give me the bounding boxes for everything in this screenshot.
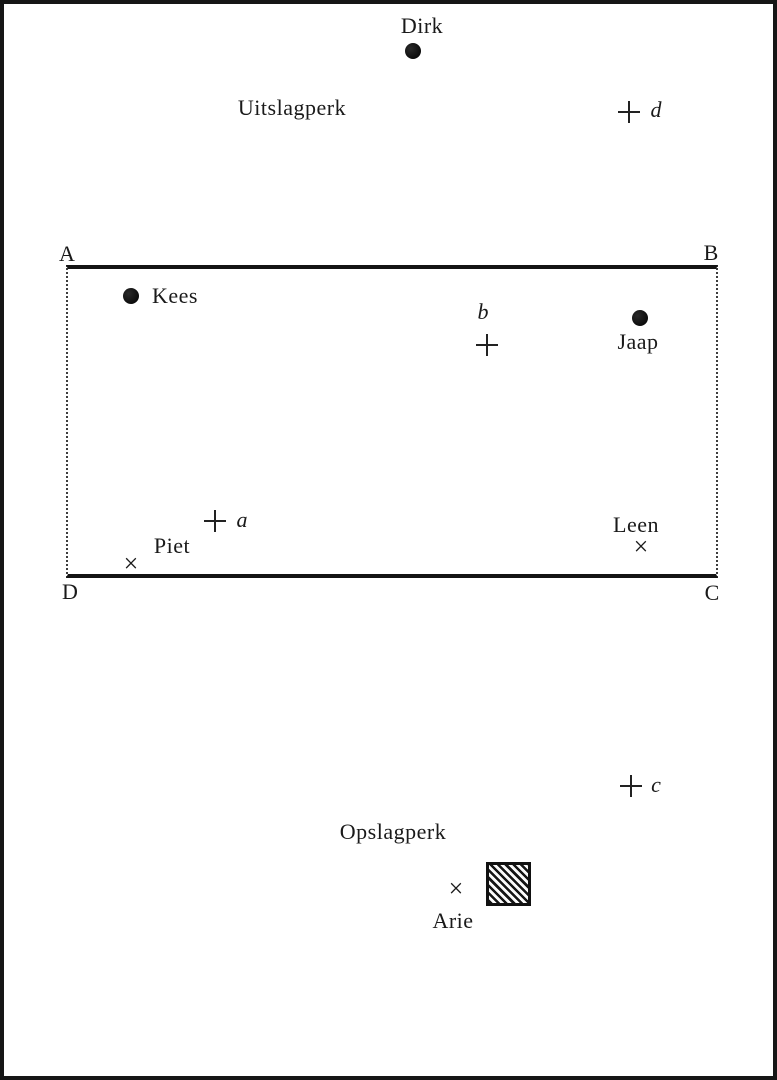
diagram-page: Dirk Uitslagperk d A B C D Kees b Jaap a… [0,0,777,1080]
corner-label-d: D [62,581,78,603]
player-label-kees: Kees [152,285,198,307]
point-label-a: a [237,509,248,531]
piet-cross-marker-icon: × [124,551,139,577]
hatched-square-icon [486,862,531,906]
corner-label-c: C [705,582,720,604]
player-label-piet: Piet [154,535,190,557]
jaap-dot-marker-icon [632,310,648,326]
point-label-d: d [651,99,662,121]
zone-label-opslagperk: Opslagperk [340,821,446,843]
player-label-jaap: Jaap [617,331,658,353]
point-b-plus-marker-icon [476,334,498,356]
point-label-b: b [478,301,489,323]
corner-label-a: A [59,243,75,265]
point-d-plus-marker-icon [618,101,640,123]
point-a-plus-marker-icon [204,510,226,532]
arie-cross-marker-icon: × [449,876,464,902]
player-label-dirk: Dirk [401,15,443,37]
corner-label-b: B [704,242,719,264]
leen-cross-marker-icon: × [634,534,649,560]
point-label-c: c [651,774,661,796]
dirk-dot-marker-icon [405,43,421,59]
zone-label-uitslagperk: Uitslagperk [238,97,346,119]
player-label-arie: Arie [432,910,473,932]
kees-dot-marker-icon [123,288,139,304]
point-c-plus-marker-icon [620,775,642,797]
